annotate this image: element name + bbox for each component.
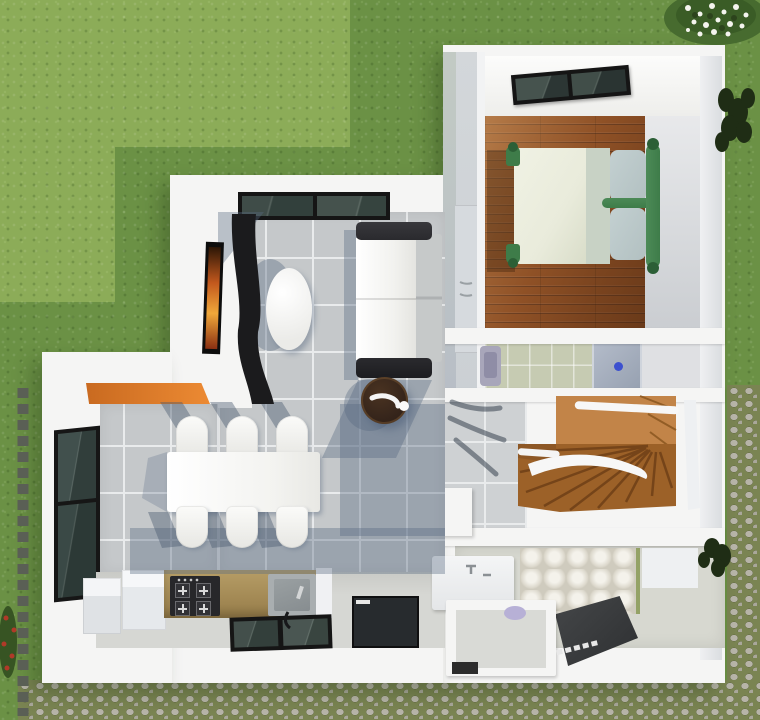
- counter-end-panel: [316, 568, 332, 618]
- window-pane: [317, 196, 386, 216]
- bed-post: [506, 244, 520, 264]
- bed-mattress: [514, 148, 588, 264]
- kitchen-side-window: [54, 426, 100, 603]
- kitchen-sink: [268, 574, 316, 616]
- window-pane: [234, 620, 279, 648]
- round-coffee-table: [361, 377, 408, 424]
- bathroom-lower-east-wall-face: [642, 548, 698, 588]
- window-pane: [242, 196, 313, 216]
- oval-side-table: [266, 268, 312, 350]
- living-picture-window: [238, 192, 390, 220]
- entry-step: [452, 662, 478, 674]
- door-glint: [356, 600, 370, 604]
- sofa-armrest-top: [356, 222, 432, 240]
- skylight-pane: [515, 74, 569, 100]
- burner: [196, 601, 211, 616]
- window-pane: [58, 430, 96, 502]
- washbasin-bowl: [484, 352, 497, 378]
- hob-knobs: [176, 578, 200, 582]
- shower-drain-blue: [614, 362, 623, 371]
- sofa-seat-cushions: [356, 238, 418, 360]
- bathroom-upper-floor: [485, 342, 595, 390]
- skylight-pane: [571, 69, 627, 96]
- wall-stairs-south: [443, 528, 725, 546]
- dining-chair: [226, 506, 258, 548]
- bed-post: [506, 146, 520, 166]
- dining-chair: [176, 506, 208, 548]
- kitchen-south-window: [229, 614, 332, 652]
- window-pane: [283, 618, 329, 646]
- wc-floor: [456, 610, 546, 668]
- bed-pillow: [610, 208, 646, 260]
- sofa-back-cushions: [416, 234, 442, 362]
- burner: [175, 583, 190, 598]
- toilet: [504, 606, 526, 620]
- dining-table: [167, 452, 320, 512]
- washbasin-upper: [480, 346, 501, 386]
- orange-bar-counter: [86, 383, 210, 404]
- floor-plan-render: [0, 0, 760, 720]
- burner: [196, 583, 211, 598]
- moss-joint-line: [636, 548, 640, 614]
- entry-door-panel: [352, 596, 419, 648]
- kitchen-cabinet-box: [122, 570, 166, 630]
- gravel-path-right: [727, 385, 760, 720]
- burner: [175, 601, 190, 616]
- sink-bowl: [274, 579, 310, 611]
- wall-bedroom-south: [443, 328, 725, 344]
- dining-chair: [276, 506, 308, 548]
- gravel-path-bottom: [18, 680, 760, 720]
- wall-bath-upper-south: [443, 388, 725, 402]
- bedroom-west-wall-edge: [477, 52, 485, 396]
- tv-wall-apron: [218, 210, 252, 408]
- bathroom-upper-east-floor: [642, 342, 700, 390]
- refrigerator: [83, 578, 121, 634]
- sofa-armrest-bottom: [356, 358, 432, 378]
- bed-headboard-rail: [646, 144, 660, 268]
- bed-pillow: [610, 150, 646, 202]
